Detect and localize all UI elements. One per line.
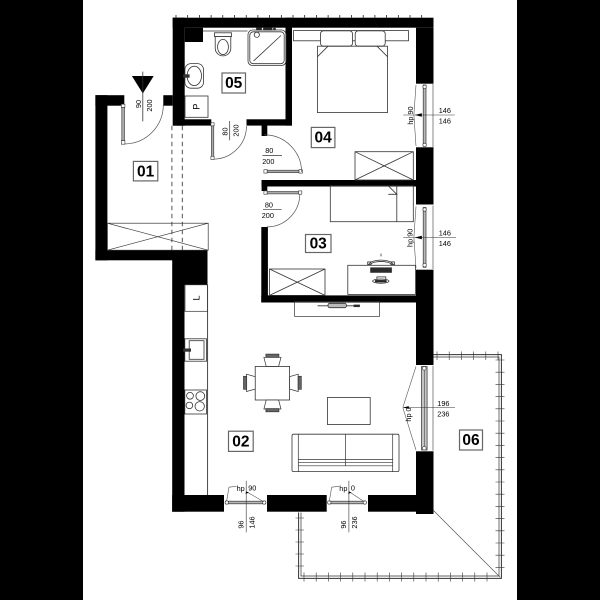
svg-text:hp 0: hp 0 xyxy=(404,407,413,421)
svg-text:P: P xyxy=(192,104,202,110)
svg-text:hp 90: hp 90 xyxy=(406,229,415,247)
svg-text:05: 05 xyxy=(225,75,243,92)
svg-text:02: 02 xyxy=(232,433,249,450)
svg-text:80: 80 xyxy=(265,200,273,209)
svg-text:146: 146 xyxy=(439,106,451,115)
svg-text:03: 03 xyxy=(310,236,328,253)
svg-text:hp: hp xyxy=(339,484,347,493)
svg-text:200: 200 xyxy=(231,124,240,136)
svg-text:01: 01 xyxy=(137,163,155,180)
svg-text:06: 06 xyxy=(462,432,480,449)
svg-text:200: 200 xyxy=(145,99,154,111)
svg-text:hp 90: hp 90 xyxy=(406,106,415,124)
svg-text:hp: hp xyxy=(237,484,245,493)
svg-text:96: 96 xyxy=(339,521,348,529)
svg-text:96: 96 xyxy=(237,521,246,529)
svg-text:200: 200 xyxy=(262,157,274,166)
svg-text:90: 90 xyxy=(134,100,143,108)
svg-text:90: 90 xyxy=(248,484,256,493)
svg-text:236: 236 xyxy=(437,410,449,419)
svg-text:L: L xyxy=(192,295,202,300)
svg-text:200: 200 xyxy=(262,211,274,220)
svg-text:146: 146 xyxy=(439,116,451,125)
svg-text:0: 0 xyxy=(351,484,355,493)
svg-text:236: 236 xyxy=(350,516,359,528)
svg-text:196: 196 xyxy=(437,399,449,408)
svg-text:146: 146 xyxy=(439,229,451,238)
svg-text:04: 04 xyxy=(314,130,332,147)
svg-text:80: 80 xyxy=(265,146,273,155)
svg-text:146: 146 xyxy=(439,239,451,248)
svg-text:146: 146 xyxy=(247,516,256,528)
svg-text:80: 80 xyxy=(220,127,229,135)
